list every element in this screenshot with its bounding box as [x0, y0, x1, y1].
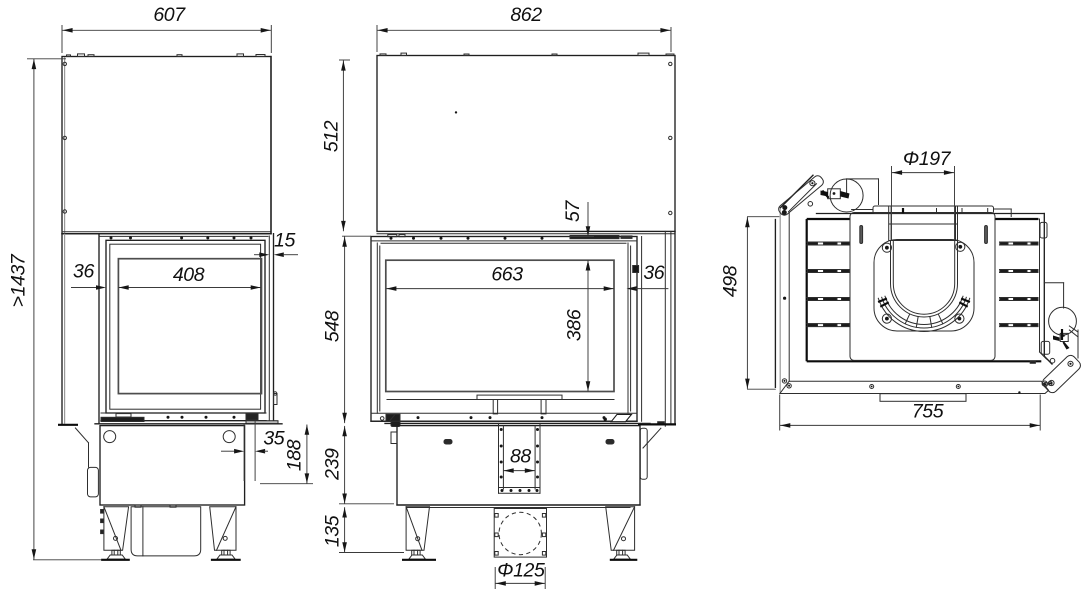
svg-text:188: 188	[284, 439, 306, 471]
svg-text:35: 35	[263, 427, 284, 449]
svg-text:498: 498	[720, 265, 742, 297]
svg-text:408: 408	[173, 264, 205, 286]
svg-text:>1437: >1437	[8, 253, 30, 307]
svg-text:57: 57	[562, 200, 584, 222]
svg-text:15: 15	[274, 230, 295, 252]
svg-text:Φ125: Φ125	[497, 559, 545, 581]
svg-text:Φ197: Φ197	[903, 148, 952, 170]
svg-text:36: 36	[73, 261, 94, 283]
svg-text:663: 663	[491, 264, 523, 286]
svg-text:135: 135	[322, 515, 344, 547]
svg-text:862: 862	[510, 4, 542, 26]
svg-text:36: 36	[643, 262, 664, 284]
svg-text:512: 512	[321, 120, 343, 152]
svg-text:607: 607	[153, 4, 186, 26]
svg-text:239: 239	[322, 448, 344, 481]
svg-text:88: 88	[510, 446, 531, 468]
svg-text:386: 386	[564, 309, 586, 341]
svg-text:755: 755	[912, 401, 944, 423]
svg-text:548: 548	[322, 310, 344, 342]
